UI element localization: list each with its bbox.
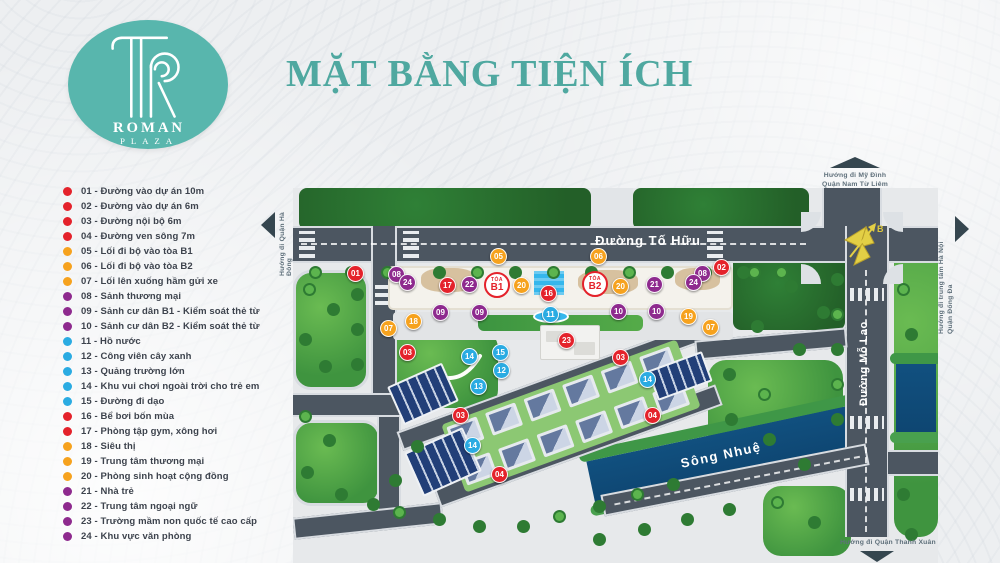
map-marker-21[interactable]: 21 (646, 276, 663, 293)
legend-dot (63, 397, 72, 406)
map-marker-09[interactable]: 09 (432, 304, 449, 321)
map-marker-03[interactable]: 03 (399, 344, 416, 361)
legend-item: 02 - Đường vào dự án 6m (63, 201, 260, 212)
legend-item: 01 - Đường vào dự án 10m (63, 186, 260, 197)
legend-dot (63, 472, 72, 481)
tree-strip-north-east (633, 188, 809, 230)
roman-plaza-logo: ROMAN PLAZA (68, 20, 228, 149)
map-marker-04[interactable]: 04 (491, 466, 508, 483)
legend-item: 11 - Hồ nước (63, 336, 260, 347)
legend-item: 23 - Trường mầm non quốc tế cao cấp (63, 516, 260, 527)
legend-label: 17 - Phòng tập gym, xông hơi (81, 426, 217, 437)
tower-b2-badge[interactable]: TÒA B2 (582, 271, 608, 297)
road-internal-west (293, 393, 401, 417)
arrow-east-icon (955, 216, 969, 242)
legend-dot (63, 367, 72, 376)
crosswalk (850, 416, 884, 429)
page-title: MẶT BẰNG TIỆN ÍCH (286, 52, 693, 96)
direction-east-label: Hướng đi trung tâm Hà Nội Quận Đống Đa (938, 214, 954, 334)
compass-letter: B (877, 224, 884, 234)
legend-label: 04 - Đường ven sông 7m (81, 231, 195, 242)
legend-dot (63, 187, 72, 196)
legend-label: 18 - Siêu thị (81, 441, 136, 452)
map-marker-04[interactable]: 04 (644, 407, 661, 424)
legend-label: 03 - Đường nội bộ 6m (81, 216, 182, 227)
map-marker-14[interactable]: 14 (639, 371, 656, 388)
river-east-segment (896, 364, 936, 432)
legend-label: 09 - Sảnh cư dân B1 - Kiểm soát thẻ từ (81, 306, 260, 317)
legend-dot (63, 412, 72, 421)
map-marker-10[interactable]: 10 (610, 303, 627, 320)
legend-label: 15 - Đường đi dạo (81, 396, 164, 407)
villa-house (575, 410, 613, 443)
legend-label: 08 - Sảnh thương mại (81, 291, 181, 302)
legend-label: 06 - Lối đi bộ vào tòa B2 (81, 261, 193, 272)
road-label-mo-lao: Đường Mỗ Lao (858, 316, 870, 411)
park-west-lower (293, 420, 381, 506)
park-east (733, 252, 845, 330)
building-block (574, 342, 595, 355)
legend-item: 13 - Quảng trường lớn (63, 366, 260, 377)
villa-house (536, 424, 574, 457)
legend-label: 16 - Bể bơi bốn mùa (81, 411, 174, 422)
legend: 01 - Đường vào dự án 10m02 - Đường vào d… (63, 186, 260, 542)
legend-dot (63, 487, 72, 496)
legend-dot (63, 247, 72, 256)
legend-label: 21 - Nhà trẻ (81, 486, 134, 497)
legend-label: 22 - Trung tâm ngoại ngữ (81, 501, 197, 512)
legend-label: 19 - Trung tâm thương mại (81, 456, 204, 467)
logo-word-roman: ROMAN (113, 120, 185, 136)
map-marker-11[interactable]: 11 (542, 306, 559, 323)
legend-label: 10 - Sảnh cư dân B2 - Kiểm soát thẻ từ (81, 321, 260, 332)
map-marker-24[interactable]: 24 (399, 274, 416, 291)
road-bottom-west (293, 502, 444, 540)
legend-dot (63, 352, 72, 361)
legend-item: 04 - Đường ven sông 7m (63, 231, 260, 242)
legend-item: 18 - Siêu thị (63, 441, 260, 452)
legend-dot (63, 337, 72, 346)
map-marker-24[interactable]: 24 (685, 274, 702, 291)
legend-label: 01 - Đường vào dự án 10m (81, 186, 204, 197)
legend-dot (63, 322, 72, 331)
map-marker-06[interactable]: 06 (590, 248, 607, 265)
logo-word-plaza: PLAZA (120, 136, 178, 146)
legend-label: 23 - Trường mầm non quốc tế cao cấp (81, 516, 257, 527)
legend-item: 06 - Lối đi bộ vào tòa B2 (63, 261, 260, 272)
legend-dot (63, 217, 72, 226)
road-label-to-huu: Đường Tố Hữu (563, 233, 733, 248)
legend-item: 08 - Sảnh thương mại (63, 291, 260, 302)
map-marker-23[interactable]: 23 (558, 332, 575, 349)
map-marker-13[interactable]: 13 (470, 378, 487, 395)
direction-north-line1: Hướng đi Mỹ Đình (800, 171, 910, 180)
crosswalk (299, 231, 315, 258)
direction-west-text: Hướng đi Quận Hà Đông (279, 196, 293, 276)
legend-item: 19 - Trung tâm thương mại (63, 456, 260, 467)
tower-name: B2 (584, 282, 606, 291)
legend-label: 05 - Lối đi bộ vào tòa B1 (81, 246, 193, 257)
legend-dot (63, 427, 72, 436)
legend-item: 14 - Khu vui chơi ngoài trời cho trẻ em (63, 381, 260, 392)
direction-south-label: Hướng đi Quận Thanh Xuân (833, 539, 938, 546)
legend-label: 11 - Hồ nước (81, 336, 141, 347)
direction-north-line2: Quận Nam Từ Liêm (800, 180, 910, 189)
arrow-north-icon (830, 157, 880, 168)
map-marker-02[interactable]: 02 (713, 259, 730, 276)
map-marker-18[interactable]: 18 (405, 313, 422, 330)
map-marker-01[interactable]: 01 (347, 265, 364, 282)
map-marker-10[interactable]: 10 (648, 303, 665, 320)
crosswalk (403, 231, 419, 258)
park-west-upper (293, 270, 369, 390)
clearing (591, 188, 633, 228)
villa-house (523, 388, 561, 421)
map-marker-03[interactable]: 03 (612, 349, 629, 366)
legend-dot (63, 262, 72, 271)
column-monogram-icon: ROMAN PLAZA (90, 26, 208, 146)
arrow-west-icon (261, 212, 275, 238)
legend-label: 12 - Công viên cây xanh (81, 351, 192, 362)
legend-label: 13 - Quảng trường lớn (81, 366, 185, 377)
map-marker-05[interactable]: 05 (490, 248, 507, 265)
legend-item: 05 - Lối đi bộ vào tòa B1 (63, 246, 260, 257)
legend-dot (63, 442, 72, 451)
legend-item: 22 - Trung tâm ngoại ngữ (63, 501, 260, 512)
map-marker-19[interactable]: 19 (680, 308, 697, 325)
map-marker-07[interactable]: 07 (380, 320, 397, 337)
direction-west-label: Hướng đi Quận Hà Đông (279, 196, 293, 276)
map-marker-22[interactable]: 22 (461, 276, 478, 293)
legend-item: 17 - Phòng tập gym, xông hơi (63, 426, 260, 437)
legend-dot (63, 307, 72, 316)
crosswalk (850, 288, 884, 301)
map-marker-17[interactable]: 17 (439, 277, 456, 294)
legend-dot (63, 457, 72, 466)
tower-b1-badge[interactable]: TÒA B1 (484, 272, 510, 298)
map-marker-16[interactable]: 16 (540, 285, 557, 302)
direction-east-line2: Quận Đống Đa (947, 214, 954, 334)
legend-dot (63, 277, 72, 286)
map-marker-20[interactable]: 20 (513, 277, 530, 294)
tower-name: B1 (486, 283, 508, 292)
legend-dot (63, 202, 72, 211)
arrow-south-icon (860, 551, 894, 562)
road-east-stub (888, 450, 938, 476)
villa-house (562, 374, 600, 407)
tree-strip-north-west (299, 188, 591, 230)
legend-item: 16 - Bể bơi bốn mùa (63, 411, 260, 422)
trees-highlight-layer (293, 188, 302, 197)
legend-dot (63, 532, 72, 541)
legend-dot (63, 232, 72, 241)
direction-east-line1: Hướng đi trung tâm Hà Nội (938, 214, 945, 334)
legend-label: 07 - Lối lên xuống hầm gửi xe (81, 276, 218, 287)
site-plan-map: Sông Nhuệ (293, 188, 938, 563)
legend-item: 07 - Lối lên xuống hầm gửi xe (63, 276, 260, 287)
map-marker-07[interactable]: 07 (702, 319, 719, 336)
map-marker-14[interactable]: 14 (461, 348, 478, 365)
map-marker-12[interactable]: 12 (493, 362, 510, 379)
map-marker-14[interactable]: 14 (464, 437, 481, 454)
legend-item: 20 - Phòng sinh hoạt cộng đồng (63, 471, 260, 482)
map-marker-03[interactable]: 03 (452, 407, 469, 424)
compass-north-icon: B (839, 216, 885, 268)
map-marker-20[interactable]: 20 (612, 278, 629, 295)
direction-north-label: Hướng đi Mỹ Đình Quận Nam Từ Liêm (800, 171, 910, 189)
legend-dot (63, 382, 72, 391)
page: ROMAN PLAZA MẶT BẰNG TIỆN ÍCH 01 - Đường… (0, 0, 1000, 563)
map-marker-15[interactable]: 15 (492, 344, 509, 361)
legend-item: 12 - Công viên cây xanh (63, 351, 260, 362)
legend-label: 14 - Khu vui chơi ngoài trời cho trẻ em (81, 381, 259, 392)
legend-dot (63, 517, 72, 526)
villa-house (485, 402, 523, 435)
legend-item: 21 - Nhà trẻ (63, 486, 260, 497)
legend-item: 09 - Sảnh cư dân B1 - Kiểm soát thẻ từ (63, 306, 260, 317)
legend-dot (63, 292, 72, 301)
legend-item: 24 - Khu vực văn phòng (63, 531, 260, 542)
legend-item: 15 - Đường đi dạo (63, 396, 260, 407)
crosswalk (850, 488, 884, 501)
legend-item: 10 - Sảnh cư dân B2 - Kiểm soát thẻ từ (63, 321, 260, 332)
legend-item: 03 - Đường nội bộ 6m (63, 216, 260, 227)
map-marker-09[interactable]: 09 (471, 304, 488, 321)
legend-dot (63, 502, 72, 511)
legend-label: 20 - Phòng sinh hoạt cộng đồng (81, 471, 229, 482)
legend-label: 02 - Đường vào dự án 6m (81, 201, 199, 212)
legend-label: 24 - Khu vực văn phòng (81, 531, 191, 542)
